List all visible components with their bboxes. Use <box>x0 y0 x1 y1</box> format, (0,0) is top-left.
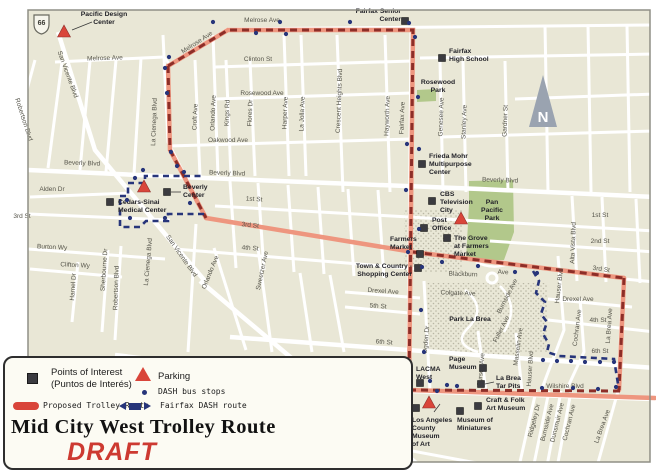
poi-label: Post <box>432 217 447 224</box>
dash-stop-dot <box>541 358 545 362</box>
bus-stop-dot-icon <box>142 390 147 395</box>
north-arrow-letter: N <box>538 109 549 126</box>
poi-label: Fairfax Senior <box>356 8 402 15</box>
dash-stop-dot <box>596 387 600 391</box>
dash-stop-dot <box>571 386 575 390</box>
dash-stop-dot <box>163 66 167 70</box>
dash-stop-dot <box>417 227 421 231</box>
dash-stop-dot <box>167 55 171 59</box>
street-label: Drexel Ave <box>562 296 594 303</box>
page-museum-square-icon <box>480 365 487 372</box>
poi-square-icon <box>27 373 38 384</box>
poi-label: Multipurpose <box>429 161 472 168</box>
legend-box: Points of Interest (Puntos de Interés) P… <box>3 356 413 470</box>
fairfax-high-school-square-icon <box>439 55 446 62</box>
street-label: Ave <box>497 269 509 276</box>
dash-stop-dot <box>435 389 439 393</box>
legend-fairfax-dash-label: Fairfax DASH route <box>160 401 247 410</box>
dash-stop-dot <box>407 21 411 25</box>
poi-label: CBS <box>440 191 455 198</box>
street-label: Gardner St <box>501 105 509 137</box>
street-label: Melrose Ave <box>87 54 123 62</box>
street-label: Harper Ave <box>281 96 289 129</box>
poi-label: Miniatures <box>457 425 491 432</box>
poi-label: Tar Pits <box>496 383 521 390</box>
street-label: Hayworth Ave <box>383 95 391 136</box>
dash-stop-dot <box>141 168 145 172</box>
poi-label: Page <box>449 356 465 363</box>
dash-stop-dot <box>182 170 186 174</box>
dash-stop-dot <box>476 264 480 268</box>
dash-stop-dot <box>133 176 137 180</box>
trolley-route-map-page: Melrose AveMelrose AveMelrose AveClinton… <box>0 0 656 473</box>
route-66-label: 66 <box>38 20 46 27</box>
draft-watermark: DRAFT <box>27 438 197 467</box>
dash-stop-dot <box>422 350 426 354</box>
poi-label: Art Museum <box>486 405 525 412</box>
dash-stop-dot <box>404 188 408 192</box>
poi-label: Center <box>93 19 115 26</box>
poi-label: Pacific Design <box>81 11 127 18</box>
dash-stop-dot <box>188 201 192 205</box>
dash-stop-dot <box>583 360 587 364</box>
dash-stop-dot <box>128 216 132 220</box>
street-label: Stanley Ave <box>460 104 468 139</box>
street-label: Rosewood Ave <box>240 90 284 97</box>
craft-folk-art-museum-square-icon <box>475 403 482 410</box>
poi-label: Office <box>432 225 451 232</box>
poi-label: Museum <box>449 364 477 371</box>
poi-label: Medical Center <box>118 207 167 214</box>
la-brea-tar-pits-square-icon <box>478 381 485 388</box>
cbs-television-city-square-icon <box>429 198 436 205</box>
dash-stop-dot <box>614 385 618 389</box>
street-label: Beverly Blvd <box>482 176 519 184</box>
dash-stop-dot <box>417 147 421 151</box>
street-label: 1st St <box>592 212 609 219</box>
dash-stop-dot <box>569 359 573 363</box>
cedars-sinai-medical-center-square-icon <box>107 199 114 206</box>
poi-label: Cedars-Sinai <box>118 199 160 206</box>
street-label: Kings Rd <box>224 99 232 126</box>
poi-label: Frieda Mohr <box>429 153 468 160</box>
dash-stop-dot <box>125 198 129 202</box>
dash-stop-dot <box>165 91 169 95</box>
frieda-mohr-multipurpose-center-square-icon <box>419 161 426 168</box>
petersen-automotive-museum-square-icon <box>413 405 420 412</box>
street-label: Oakwood Ave <box>208 137 248 144</box>
street-label: Beverly Blvd <box>64 159 101 167</box>
dash-stop-dot <box>211 20 215 24</box>
poi-label: Center <box>429 169 451 176</box>
poi-label: Market <box>454 251 477 258</box>
poi-label: Park <box>431 87 446 94</box>
dash-stop-dot <box>413 35 417 39</box>
street-label: Flores Dr <box>247 99 255 127</box>
dash-stop-dot <box>440 260 444 264</box>
street-label: Blackburn <box>448 270 478 278</box>
dash-stop-dot <box>445 383 449 387</box>
street-label: 1st St <box>246 196 263 204</box>
dash-stop-dot <box>535 271 539 275</box>
dash-stop-dot <box>419 308 423 312</box>
parking-triangle-icon <box>135 367 151 381</box>
fairfax-dash-route-icon <box>119 402 151 410</box>
dash-stop-dot <box>555 359 559 363</box>
dash-stop-dot <box>284 32 288 36</box>
poi-label: The Grove <box>454 235 488 242</box>
post-office-square-icon <box>421 225 428 232</box>
dash-stop-dot <box>169 150 173 154</box>
dash-stop-dot <box>254 31 258 35</box>
street-label: 2nd St <box>591 238 610 245</box>
poi-label: Craft & Folk <box>486 397 525 404</box>
poi-label: of Art <box>412 441 431 448</box>
street-label: La Jolla Ave <box>298 96 306 132</box>
poi-label: Museum <box>412 433 440 440</box>
street-label: Clinton St <box>244 56 272 63</box>
poi-label: Park La Brea <box>449 316 491 323</box>
dash-stop-dot <box>405 142 409 146</box>
poi-label: Rosewood <box>421 79 455 86</box>
poi-label: Town & Country - <box>356 263 412 270</box>
dash-stop-dot <box>420 265 424 269</box>
dash-stop-dot <box>612 360 616 364</box>
street-label: Melrose Ave <box>244 17 280 24</box>
dash-stop-dot <box>513 270 517 274</box>
poi-label: La Brea <box>496 375 521 382</box>
poi-label: Center <box>379 16 401 23</box>
street-label: 4th St <box>241 244 259 252</box>
dash-stop-dot <box>406 250 410 254</box>
trolley-route-icon <box>13 402 39 410</box>
street-label: 6th St <box>592 348 609 355</box>
poi-label: Market <box>390 244 413 251</box>
poi-label: County <box>412 425 436 432</box>
street-label: Beverly Blvd <box>209 169 246 177</box>
street-label: 5th St <box>369 302 387 310</box>
the-grove-at-farmers-market-square-icon <box>444 235 451 242</box>
map-title: Mid City West Trolley Route <box>11 416 276 439</box>
street-label: Wilshire Blvd <box>546 383 584 390</box>
dash-stop-dot <box>540 386 544 390</box>
poi-label: LACMA <box>416 366 441 373</box>
street-label: 4th St <box>590 317 607 324</box>
street-label: Alden Dr <box>39 186 65 193</box>
poi-label: Center <box>183 192 205 199</box>
poi-label: Farmers <box>390 236 417 243</box>
poi-label: Park <box>485 215 500 222</box>
poi-label: Television <box>440 199 473 206</box>
legend-poi-label: Points of Interest <box>51 367 132 379</box>
street-label: Orlando Ave <box>209 95 217 131</box>
dash-stop-dot <box>455 384 459 388</box>
legend-dash-stops-label: DASH bus stops <box>158 387 225 396</box>
poi-label: Pacific <box>481 207 503 214</box>
street-label: Croft Ave <box>192 103 200 130</box>
street-label: Fairfax Ave <box>398 101 406 134</box>
poi-label: City <box>440 207 453 214</box>
dash-stop-dot <box>175 164 179 168</box>
museum-of-miniatures-square-icon <box>457 408 464 415</box>
poi-label: Museum of <box>457 417 494 424</box>
poi-label: Shopping Center <box>357 271 412 278</box>
poi-label: Beverly <box>183 184 208 191</box>
poi-label: High School <box>449 56 489 63</box>
dash-stop-dot <box>416 95 420 99</box>
dash-stop-dot <box>598 360 602 364</box>
dash-stop-dot <box>348 20 352 24</box>
street-label: Colgate Ave <box>440 289 476 297</box>
poi-label: at Farmers <box>454 243 489 250</box>
legend-poi-label-es: (Puntos de Interés) <box>51 379 132 391</box>
legend-parking-label: Parking <box>158 371 190 383</box>
street-label: Alta Vista Blvd <box>569 222 577 264</box>
beverly-center-square-icon <box>164 189 171 196</box>
farmers-market-square-icon <box>417 251 424 258</box>
dash-stop-dot <box>278 20 282 24</box>
poi-label: Fairfax <box>449 48 472 55</box>
poi-label: Los Angeles <box>412 417 452 424</box>
street-label: 6th St <box>375 338 393 346</box>
poi-label: Pan <box>486 199 498 206</box>
street-label: Genesee Ave <box>437 97 445 137</box>
dash-stop-dot <box>428 379 432 383</box>
dash-stop-dot <box>163 216 167 220</box>
